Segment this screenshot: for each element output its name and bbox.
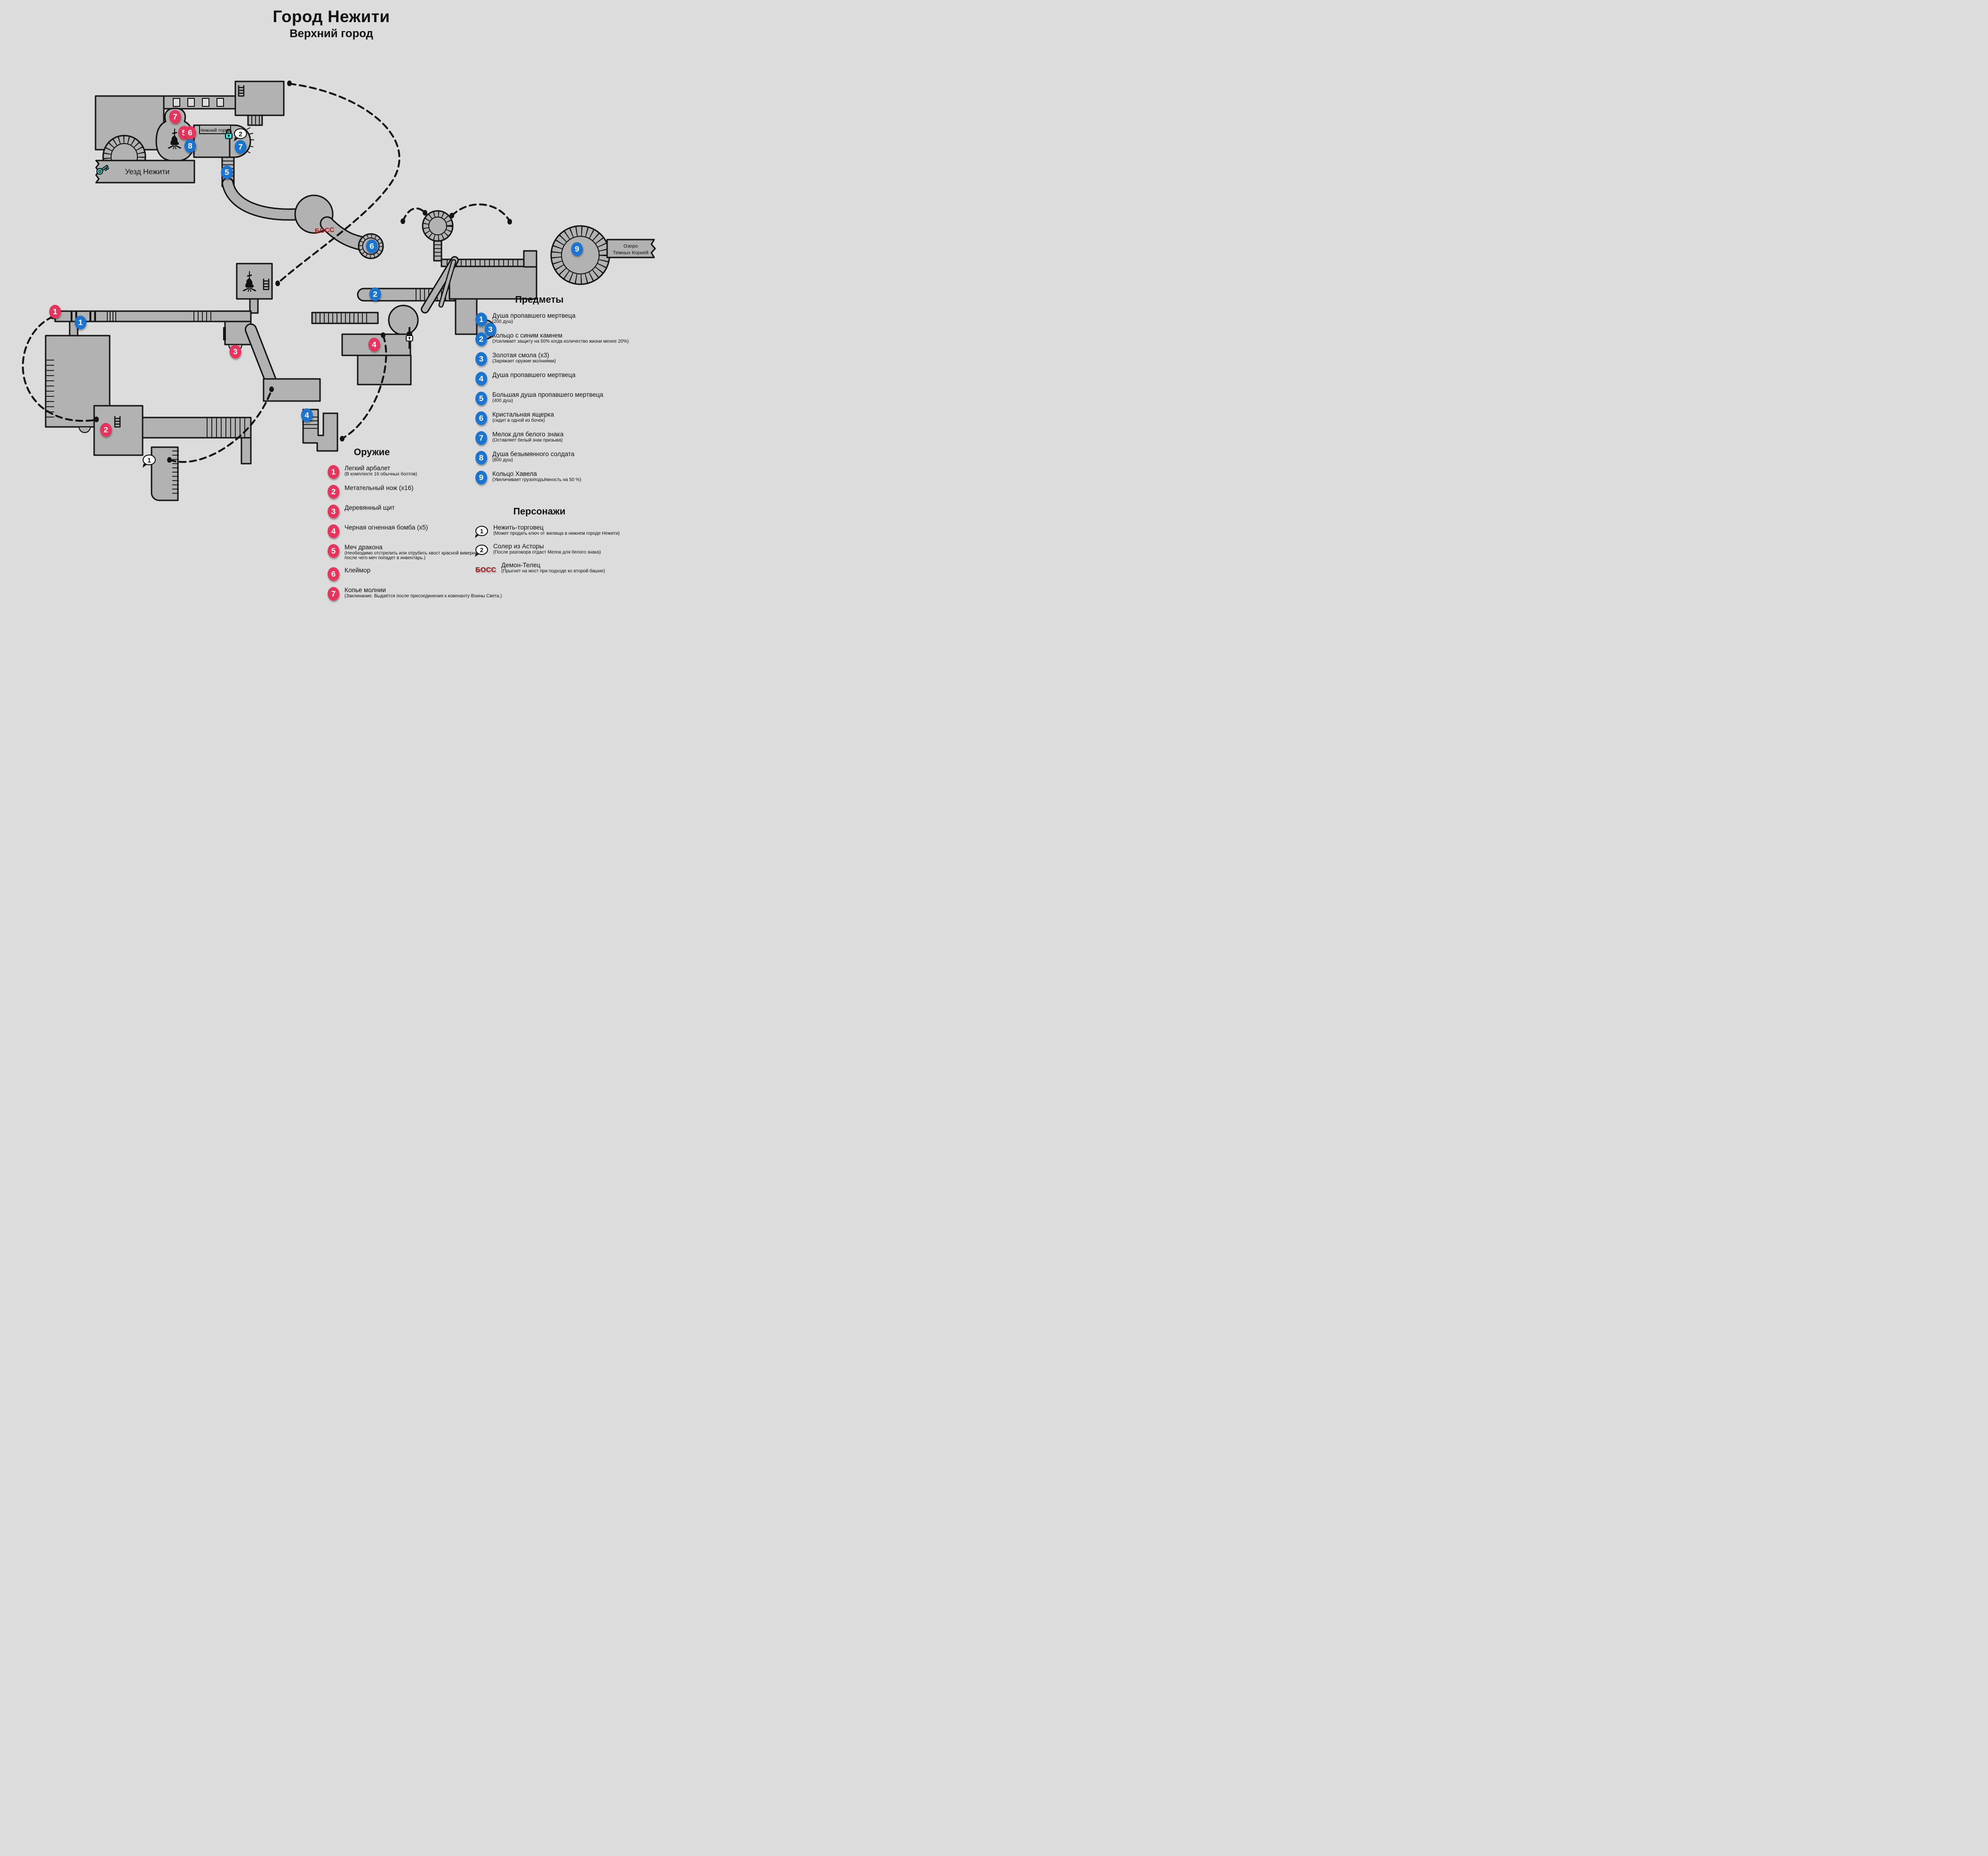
legend-entry-name: Деревянный щит	[345, 504, 395, 512]
legend-text: Солер из Асторы(После разговора отдаст М…	[493, 543, 601, 555]
map-marker-item-5: 5	[221, 166, 233, 179]
legend-row: 3Золотая смола (x3)(Заряжает оружие молн…	[475, 352, 660, 366]
legend-weapons-title: Оружие	[328, 447, 416, 458]
left-lower-buildings	[46, 311, 337, 500]
legend-entry-sub: (400 душ)	[492, 399, 603, 404]
map-marker-item-4: 4	[301, 409, 313, 422]
legend-entry-name: Золотая смола (x3)	[492, 352, 556, 359]
legend-badge-5: 5	[475, 392, 487, 405]
legend-row: 7Копье молнии(Заклинание. Выдаётся после…	[328, 587, 525, 601]
legend-entry-name: Меч дракона	[345, 544, 479, 551]
legend-row: 1Душа пропавшего мертвеца(200 душ)	[475, 312, 660, 326]
legend-text: Душа пропавшего мертвеца	[492, 371, 576, 379]
middle-tower	[423, 211, 453, 261]
legend-entry-name: Душа пропавшего мертвеца	[492, 312, 576, 320]
map-marker-item-6: 6	[366, 240, 378, 253]
label-nizhny-gorod: Нижний город	[199, 128, 231, 133]
legend-row: 2Солер из Асторы(После разговора отдаст …	[475, 543, 660, 556]
map-marker-item-9: 9	[571, 242, 583, 256]
page-subtitle: Верхний город	[0, 27, 663, 40]
central-bonfire-room	[237, 264, 272, 313]
legend-badge-5: 5	[328, 544, 339, 558]
legend-badge-1: 1	[475, 313, 487, 326]
legend-badge-3: 3	[328, 505, 339, 518]
legend-entry-name: Черная огненная бомба (x5)	[345, 524, 428, 531]
legend-badge-1: 1	[475, 526, 488, 536]
map-marker-weapon-7: 7	[169, 110, 181, 124]
legend-text: Большая душа пропавшего мертвеца(400 душ…	[492, 391, 603, 403]
legend-characters: Персонажи 1Нежить-торговец(Может продать…	[475, 506, 660, 582]
legend-entry-name: Большая душа пропавшего мертвеца	[492, 391, 603, 399]
legend-entry-sub: (Оставляет белый знак призыва)	[492, 438, 563, 443]
legend-badge-2: 2	[475, 332, 487, 346]
legend-text: Легкий арбалет(В комплекте 16 обычных бо…	[345, 465, 417, 477]
legend-row: 7Мелок для белого знака(Оставляет белый …	[475, 431, 660, 445]
legend-badge-2: 2	[328, 485, 339, 498]
legend-characters-list: 1Нежить-торговец(Может продать ключ от ж…	[475, 524, 660, 577]
map-title-block: Город Нежити Верхний город	[0, 8, 663, 40]
legend-text: Черная огненная бомба (x5)	[345, 524, 428, 531]
legend-row: 1Нежить-торговец(Может продать ключ от ж…	[475, 524, 660, 537]
label-boss: БОСС	[315, 226, 335, 235]
legend-entry-name: Копье молнии	[345, 587, 502, 594]
legend-entry-sub: (После разговора отдаст Мелок для белого…	[493, 550, 601, 555]
legend-entry-sub: (Заряжает оружие молниями)	[492, 359, 556, 364]
legend-entry-sub: (Может продать ключ от жилища в нижнем г…	[493, 531, 620, 537]
legend-row: 1Легкий арбалет(В комплекте 16 обычных б…	[328, 465, 525, 479]
map-marker-weapon-3: 3	[230, 345, 241, 359]
map-marker-item-7: 7	[235, 140, 247, 154]
legend-entry-name: Метательный нож (x16)	[345, 484, 414, 492]
legend-text: Кольцо с синим камнем(Усиливает защиту н…	[492, 332, 629, 344]
legend-row: 4Душа пропавшего мертвеца	[475, 371, 660, 386]
legend-text: Демон-Телец(Прыгнет на мост при подходе …	[501, 562, 605, 574]
legend-text: Метательный нож (x16)	[345, 484, 414, 492]
legend-row: 5Большая душа пропавшего мертвеца(400 ду…	[475, 391, 660, 405]
legend-entry-name: Душа пропавшего мертвеца	[492, 371, 576, 379]
legend-text: Нежить-торговец(Может продать ключ от жи…	[493, 524, 620, 536]
legend-text: Меч дракона(Необходимо отстрелить или от…	[345, 544, 479, 561]
legend-badge-7: 7	[475, 431, 487, 445]
legend-text: Деревянный щит	[345, 504, 395, 512]
legend-entry-name: Легкий арбалет	[345, 465, 417, 472]
legend-entry-name: Кристальная ящерка	[492, 411, 554, 418]
legend-entry-name: Клеймор	[345, 567, 370, 574]
map-marker-weapon-4: 4	[369, 338, 380, 352]
legend-row: 6Кристальная ящерка(сидит в одной из боч…	[475, 411, 660, 425]
map-marker-item-2: 2	[369, 288, 381, 301]
legend-row: БОССДемон-Телец(Прыгнет на мост при подх…	[475, 562, 660, 577]
boss-bridge-path	[228, 184, 363, 244]
legend-badge-БОСС: БОСС	[475, 563, 496, 577]
page-title: Город Нежити	[0, 8, 663, 26]
map-marker-item-8: 8	[184, 139, 196, 153]
legend-entry-sub: (Заклинание. Выдаётся после присоединени…	[345, 594, 502, 599]
legend-entry-name: Нежить-торговец	[493, 524, 620, 531]
legend-badge-6: 6	[475, 411, 487, 425]
legend-entry-sub: (Необходимо отстрелить или отрубить хвос…	[345, 551, 479, 562]
legend-badge-4: 4	[475, 372, 487, 386]
map-marker-weapon-6: 6	[184, 126, 196, 140]
legend-entry-sub: (Прыгнет на мост при подходе ко второй б…	[501, 569, 605, 574]
legend-entry-sub: (200 душ)	[492, 320, 576, 325]
legend-entry-sub: (В комплекте 16 обычных болтов)	[345, 472, 417, 477]
map-marker-bubble-2: 2	[234, 129, 247, 139]
legend-text: Кристальная ящерка(сидит в одной из боче…	[492, 411, 554, 423]
legend-badge-4: 4	[328, 524, 339, 538]
label-lake-2: Темных Корней	[613, 250, 649, 256]
legend-entry-name: Солер из Асторы	[493, 543, 601, 550]
map-marker-weapon-2: 2	[100, 423, 112, 437]
map-marker-weapon-1: 1	[49, 305, 61, 319]
legend-entry-name: Кольцо с синим камнем	[492, 332, 629, 339]
map-marker-bubble-1: 1	[143, 455, 156, 466]
label-lake-1: Озеро	[624, 243, 638, 249]
map-marker-item-3: 3	[485, 323, 497, 337]
legend-badge-1: 1	[328, 465, 339, 479]
legend-text: Душа пропавшего мертвеца(200 душ)	[492, 312, 576, 324]
legend-row: 2Кольцо с синим камнем(Усиливает защиту …	[475, 332, 660, 346]
legend-badge-7: 7	[328, 587, 339, 601]
legend-row: 2Метательный нож (x16)	[328, 484, 525, 498]
legend-badge-2: 2	[475, 545, 488, 555]
legend-text: Копье молнии(Заклинание. Выдаётся после …	[345, 587, 502, 599]
legend-entry-name: Демон-Телец	[501, 562, 605, 569]
legend-badge-6: 6	[328, 567, 339, 581]
legend-text: Золотая смола (x3)(Заряжает оружие молни…	[492, 352, 556, 364]
legend-entry-sub: (сидит в одной из бочек)	[492, 418, 554, 424]
legend-text: Клеймор	[345, 567, 370, 574]
courtyard-circle	[389, 305, 418, 335]
legend-badge-3: 3	[475, 352, 487, 366]
label-uyezd: Уезд Нежити	[125, 168, 170, 176]
legend-entry-name: Мелок для белого знака	[492, 431, 563, 438]
legend-characters-title: Персонажи	[475, 506, 603, 517]
legend-text: Мелок для белого знака(Оставляет белый з…	[492, 431, 563, 443]
legend-items-title: Предметы	[475, 295, 603, 305]
legend-entry-sub: (Усиливает защиту на 50% когда количеств…	[492, 339, 629, 345]
map-marker-item-1: 1	[75, 316, 87, 329]
